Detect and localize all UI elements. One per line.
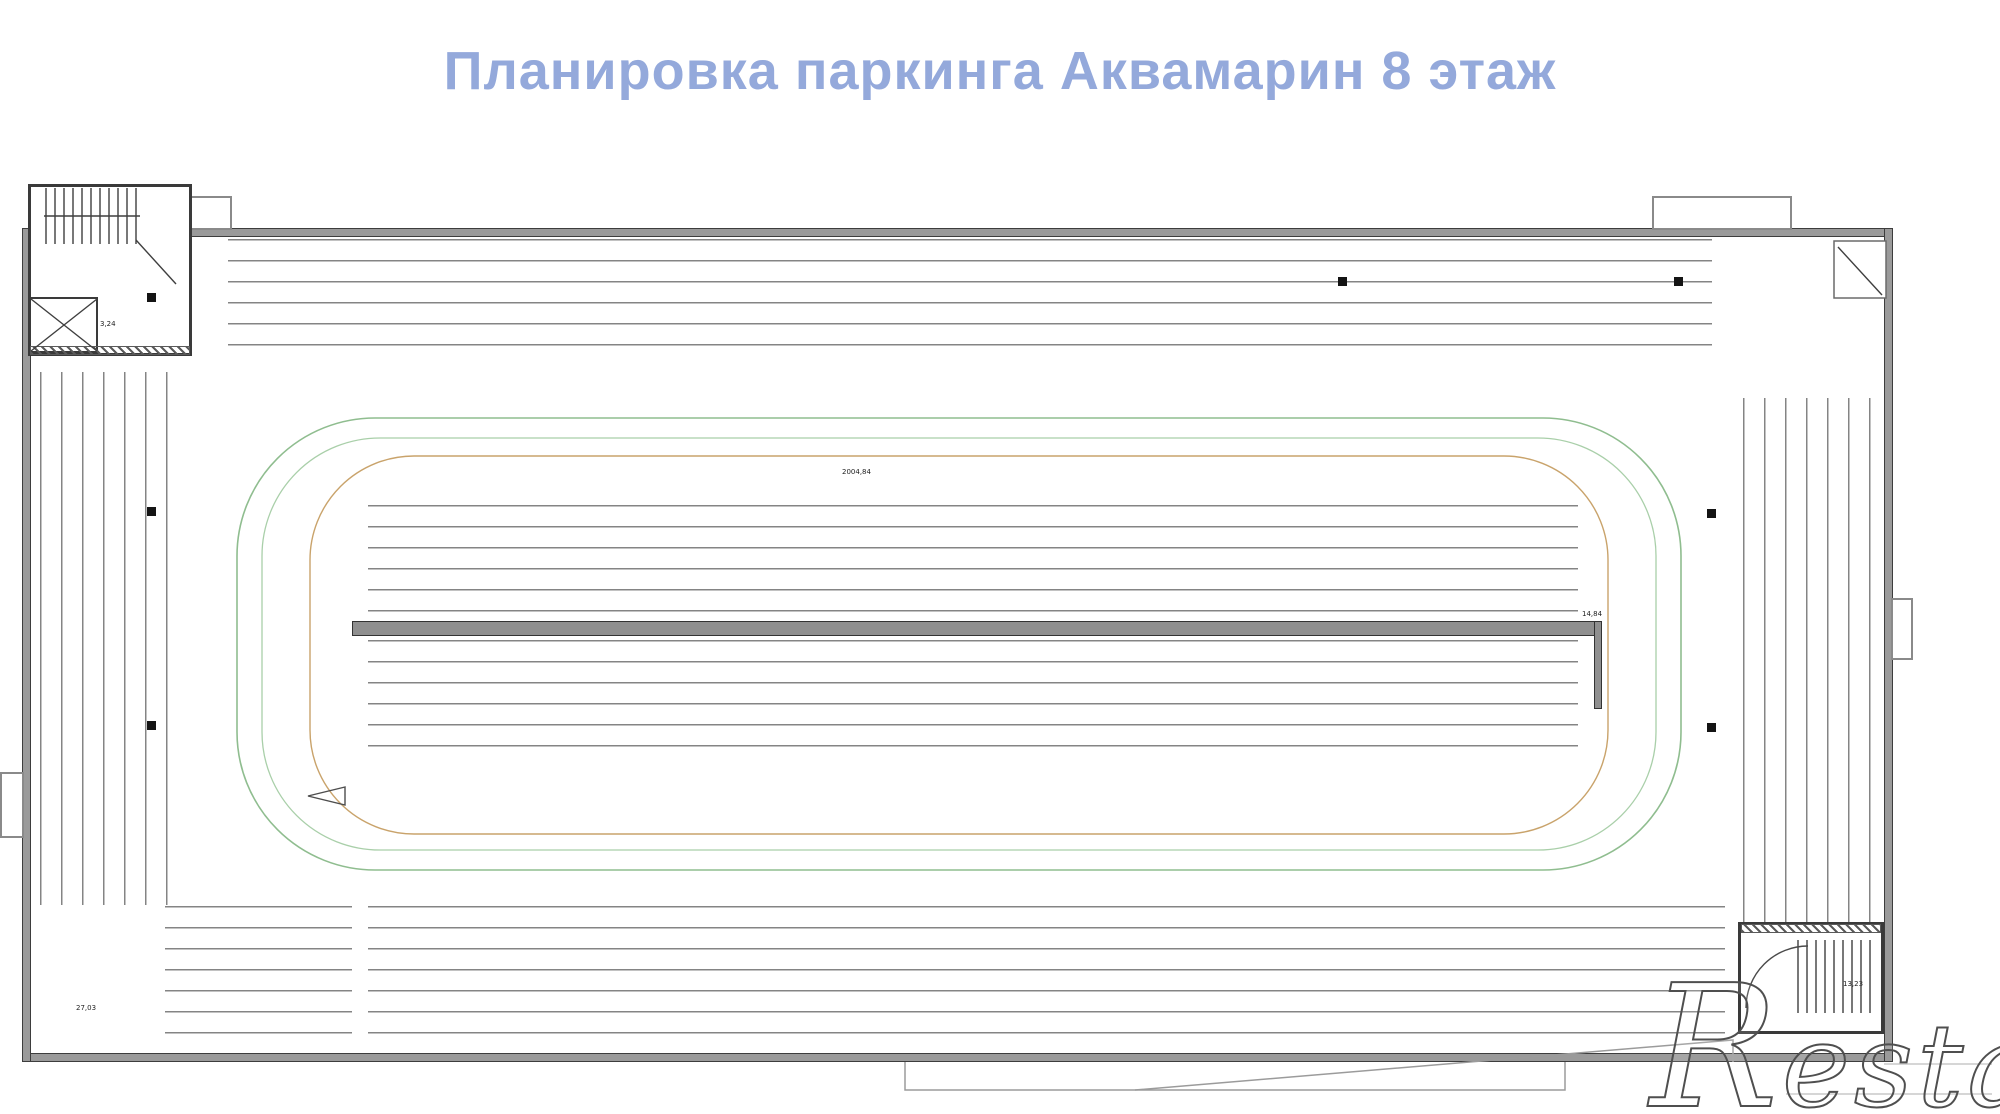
column-marker <box>1338 277 1347 286</box>
top-row <box>228 239 1712 365</box>
stairwell-bottom-right <box>1738 922 1884 1034</box>
bottom-left-group <box>165 906 352 1034</box>
plan-label: 14,84 <box>1582 610 1602 618</box>
island-lower-row <box>368 640 1578 761</box>
column-marker <box>147 721 156 730</box>
protrusion-left <box>0 772 24 838</box>
hatched-wall-bottom-right <box>1741 924 1881 933</box>
plan-label: 3,24 <box>100 320 116 328</box>
island-upper-row <box>368 505 1578 622</box>
island-divider-wall <box>352 621 1602 636</box>
protrusion-right <box>1891 598 1913 660</box>
column-marker <box>1707 509 1716 518</box>
bottom-row <box>368 906 1725 1034</box>
hatched-wall-top-left <box>30 346 190 355</box>
roof-bump-right <box>1652 196 1792 230</box>
island-divider-stub <box>1594 621 1602 709</box>
parking-plan-page: Планировка паркинга Аквамарин 8 этаж 3,2… <box>0 0 2000 1114</box>
floor-plan: 3,242004,8414,8427,0313,23 <box>0 0 2000 1114</box>
column-marker <box>1674 277 1683 286</box>
plan-label: 13,23 <box>1843 980 1863 988</box>
plan-label: 2004,84 <box>842 468 871 476</box>
left-column <box>40 372 178 905</box>
plan-label: 27,03 <box>76 1004 96 1012</box>
column-marker <box>147 293 156 302</box>
column-marker <box>1707 723 1716 732</box>
wall-bottom <box>22 1053 1893 1062</box>
wall-top <box>22 228 1893 237</box>
elevator-shaft <box>29 297 98 353</box>
right-column <box>1743 398 1880 922</box>
column-marker <box>147 507 156 516</box>
